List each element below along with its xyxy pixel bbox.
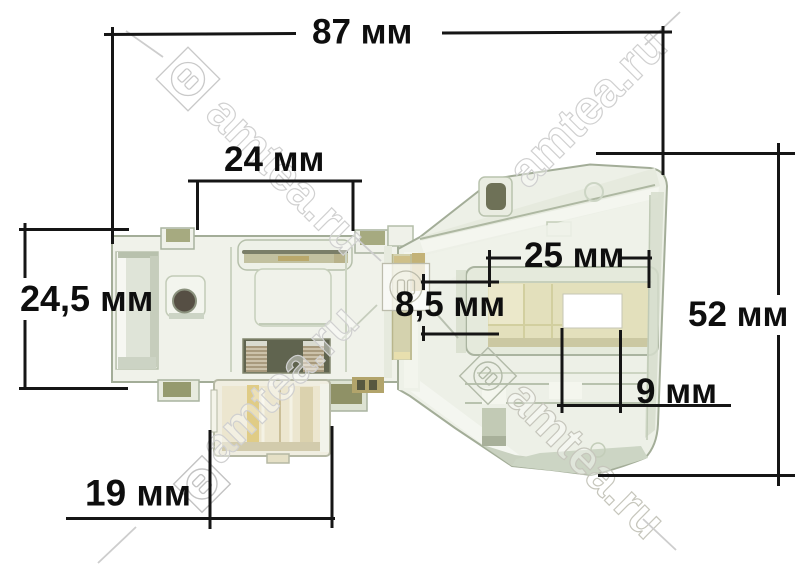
svg-text:87 мм: 87 мм — [312, 13, 412, 52]
svg-text:9 мм: 9 мм — [636, 372, 717, 411]
svg-text:25 мм: 25 мм — [524, 236, 624, 275]
svg-text:52 мм: 52 мм — [688, 295, 788, 334]
svg-text:24,5 мм: 24,5 мм — [20, 278, 153, 319]
svg-text:8,5 мм: 8,5 мм — [395, 285, 505, 324]
svg-text:19 мм: 19 мм — [85, 473, 191, 514]
svg-text:24 мм: 24 мм — [224, 140, 324, 179]
